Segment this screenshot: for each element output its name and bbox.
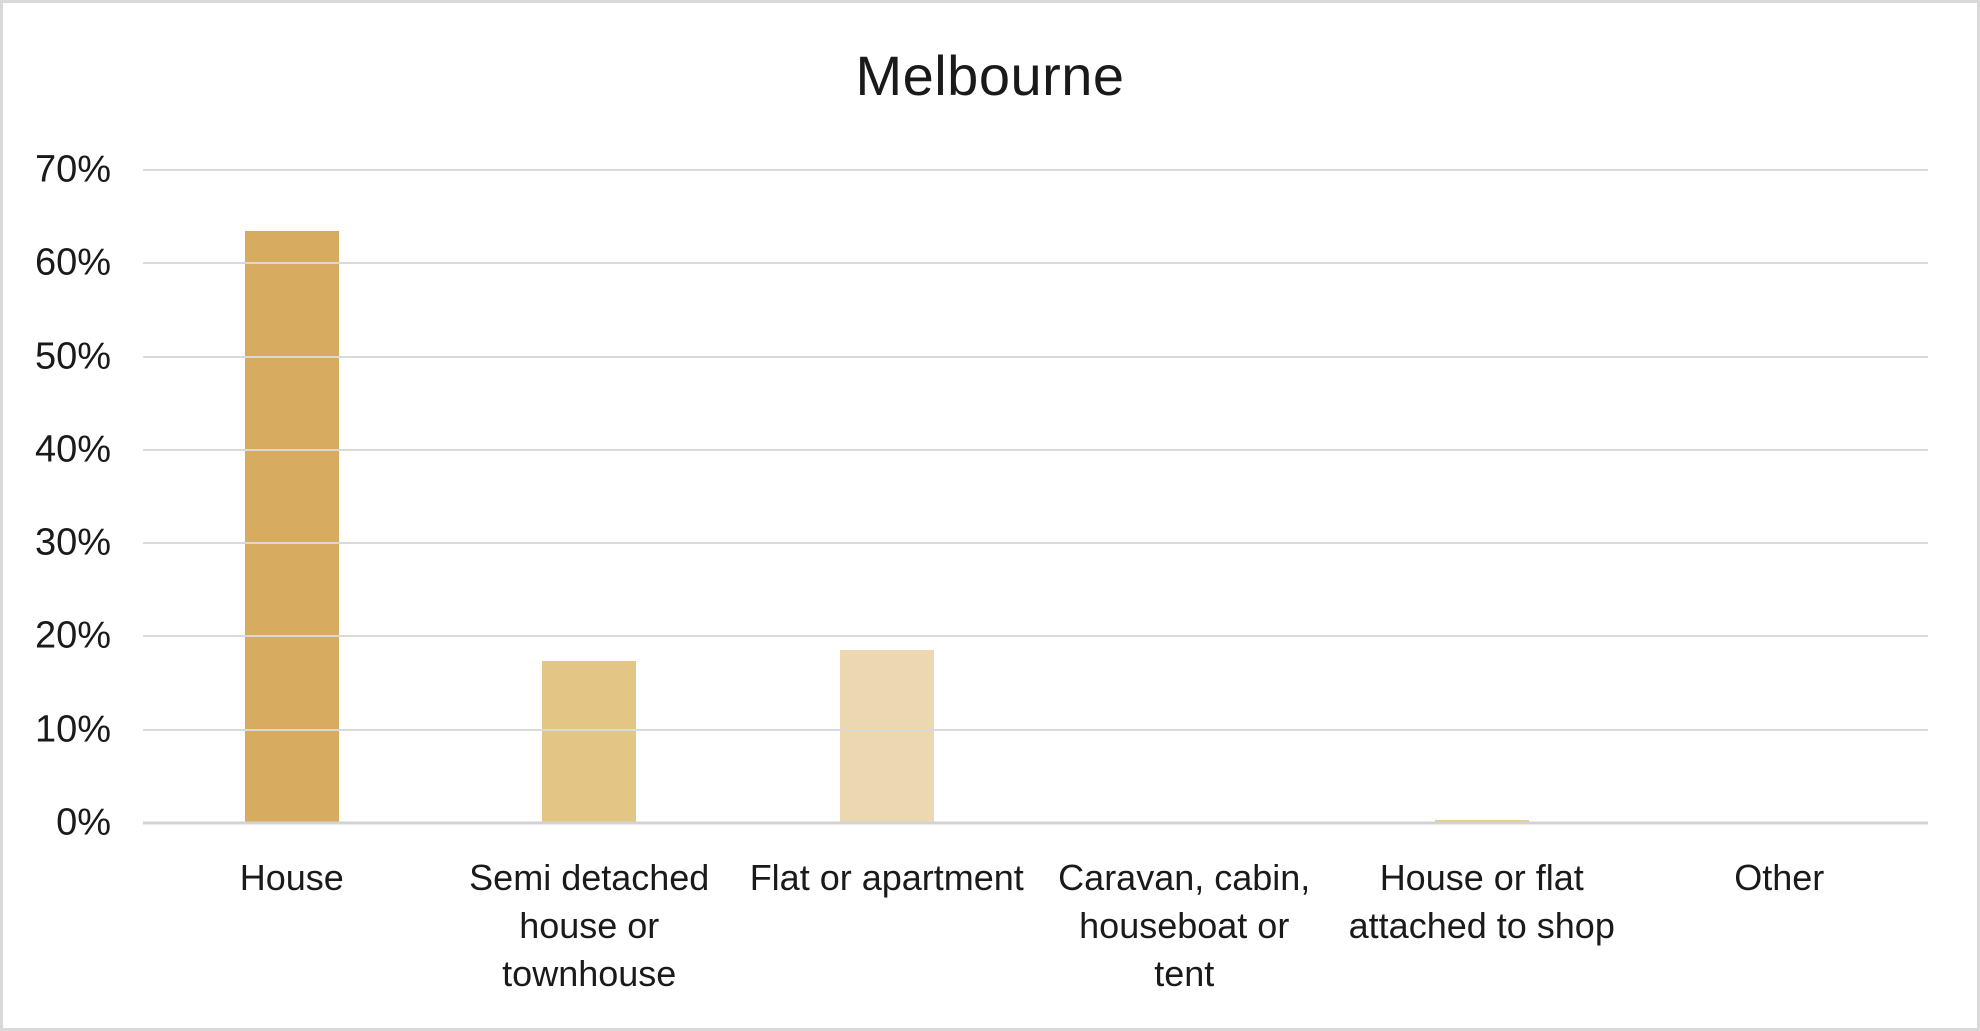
bar-slot-house-or-flat-attached-to-shop bbox=[1333, 170, 1631, 823]
x-category-label-other: Other bbox=[1631, 854, 1929, 998]
bar-series bbox=[143, 170, 1928, 823]
bar-flat-or-apartment bbox=[840, 650, 934, 823]
bar-semi-detached-house-or-townhouse bbox=[542, 661, 636, 823]
y-tick-label-70: 70% bbox=[35, 149, 111, 192]
gridline-40 bbox=[143, 449, 1928, 451]
gridline-10 bbox=[143, 729, 1928, 731]
chart-frame: Melbourne 0%10%20%30%40%50%60%70% HouseS… bbox=[0, 0, 1980, 1031]
x-category-label-semi-detached-house-or-townhouse: Semi detached house or townhouse bbox=[441, 854, 739, 998]
x-category-label-caravan-cabin-houseboat-or-tent: Caravan, cabin, houseboat or tent bbox=[1036, 854, 1334, 998]
y-tick-label-20: 20% bbox=[35, 615, 111, 658]
plot-area bbox=[143, 170, 1928, 823]
x-axis-line bbox=[143, 822, 1928, 825]
bar-slot-other bbox=[1631, 170, 1929, 823]
x-axis-labels: HouseSemi detached house or townhouseFla… bbox=[143, 854, 1928, 998]
chart-title: Melbourne bbox=[3, 43, 1977, 108]
gridline-30 bbox=[143, 542, 1928, 544]
x-category-label-house: House bbox=[143, 854, 441, 998]
y-tick-label-10: 10% bbox=[35, 708, 111, 751]
y-tick-label-50: 50% bbox=[35, 335, 111, 378]
x-category-label-house-or-flat-attached-to-shop: House or flat attached to shop bbox=[1333, 854, 1631, 998]
bar-slot-semi-detached-house-or-townhouse bbox=[441, 170, 739, 823]
y-axis: 0%10%20%30%40%50%60%70% bbox=[3, 170, 111, 823]
gridline-60 bbox=[143, 262, 1928, 264]
y-tick-label-40: 40% bbox=[35, 428, 111, 471]
x-category-label-flat-or-apartment: Flat or apartment bbox=[738, 854, 1036, 998]
bar-slot-flat-or-apartment bbox=[738, 170, 1036, 823]
y-tick-label-60: 60% bbox=[35, 242, 111, 285]
bar-slot-house bbox=[143, 170, 441, 823]
bar-slot-caravan-cabin-houseboat-or-tent bbox=[1036, 170, 1334, 823]
gridline-50 bbox=[143, 356, 1928, 358]
gridline-20 bbox=[143, 635, 1928, 637]
gridline-70 bbox=[143, 169, 1928, 171]
y-tick-label-0: 0% bbox=[56, 802, 111, 845]
bar-house bbox=[245, 231, 339, 823]
y-tick-label-30: 30% bbox=[35, 522, 111, 565]
